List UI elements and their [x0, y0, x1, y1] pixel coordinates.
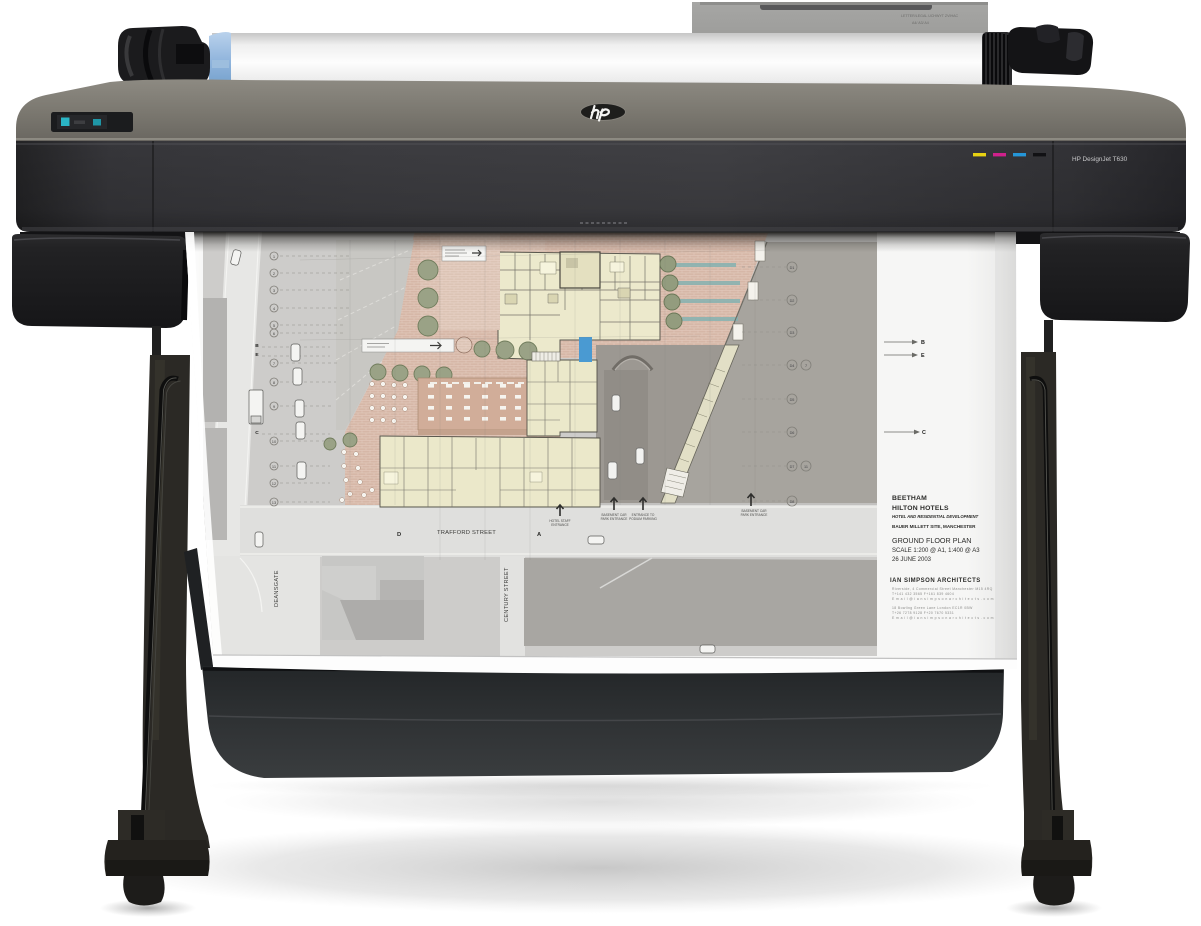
svg-text:IAN SIMPSON ARCHITECTS: IAN SIMPSON ARCHITECTS	[890, 578, 981, 584]
svg-text:B: B	[921, 340, 925, 346]
svg-text:ENTRANCE: ENTRANCE	[551, 523, 569, 527]
svg-text:PARK ENTRANCE: PARK ENTRANCE	[741, 513, 768, 517]
svg-text:18 Bowling Green Lane London: 18 Bowling Green Lane London EC1R 0BW	[892, 606, 973, 610]
svg-text:Riverside, 4 Commercial Street: Riverside, 4 Commercial Street Mancheste…	[892, 587, 993, 591]
svg-text:E: E	[921, 353, 925, 359]
svg-text:SCALE 1:200 @ A1, 1:400 @ A3: SCALE 1:200 @ A1, 1:400 @ A3	[892, 548, 980, 554]
svg-text:E m a i l @ i a n s i m p s o: E m a i l @ i a n s i m p s o n a r c h …	[892, 616, 994, 620]
svg-text:7: 7	[805, 364, 807, 368]
svg-text:13: 13	[272, 500, 277, 505]
svg-text:BEETHAM: BEETHAM	[892, 495, 927, 502]
svg-text:D1: D1	[790, 266, 795, 270]
svg-text:D4: D4	[790, 364, 795, 368]
svg-text:D2: D2	[790, 299, 795, 303]
svg-text:E m a i l @ i a n s i m p s o: E m a i l @ i a n s i m p s o n a r c h …	[892, 597, 994, 601]
svg-text:PODIUM PARKING: PODIUM PARKING	[629, 517, 657, 521]
svg-text:A4/ A3/ A4: A4/ A3/ A4	[912, 21, 929, 25]
svg-text:10: 10	[272, 439, 277, 444]
svg-text:PARK ENTRANCE: PARK ENTRANCE	[601, 517, 628, 521]
svg-text:D8: D8	[790, 500, 795, 504]
svg-text:C: C	[922, 430, 926, 436]
svg-text:LETTER/LEGAL UCHWYT ZVIHAC: LETTER/LEGAL UCHWYT ZVIHAC	[901, 14, 959, 18]
svg-text:HILTON HOTELS: HILTON HOTELS	[892, 505, 949, 512]
svg-text:12: 12	[272, 481, 277, 486]
svg-text:BAUER MILLETT SITE, MANCHESTER: BAUER MILLETT SITE, MANCHESTER	[892, 524, 976, 529]
svg-text:TRAFFORD STREET: TRAFFORD STREET	[437, 530, 496, 536]
svg-text:D7: D7	[790, 465, 795, 469]
svg-text:26 JUNE 2003: 26 JUNE 2003	[892, 557, 932, 563]
svg-text:D5: D5	[790, 398, 795, 402]
svg-text:D6: D6	[790, 431, 795, 435]
svg-text:HOTEL AND RESIDENTIAL DEVELOPM: HOTEL AND RESIDENTIAL DEVELOPMENT	[892, 514, 979, 519]
svg-text:CENTURY STREET: CENTURY STREET	[504, 567, 510, 622]
svg-text:GROUND FLOOR PLAN: GROUND FLOOR PLAN	[892, 536, 971, 545]
svg-text:HP DesignJet T630: HP DesignJet T630	[1072, 156, 1128, 163]
svg-text:DEANSGATE: DEANSGATE	[274, 570, 280, 607]
svg-text:T+26 7278 9128 F+20 7670: T+26 7278 9128 F+20 7670 5331	[892, 611, 954, 615]
svg-text:11: 11	[804, 465, 808, 469]
svg-text:D3: D3	[790, 331, 795, 335]
svg-text:C: C	[255, 430, 259, 436]
svg-text:T+141 432 3565 F+161 839: T+141 432 3565 F+161 839 4604	[892, 592, 954, 596]
svg-text:B: B	[255, 343, 259, 349]
svg-text:D: D	[397, 532, 401, 538]
